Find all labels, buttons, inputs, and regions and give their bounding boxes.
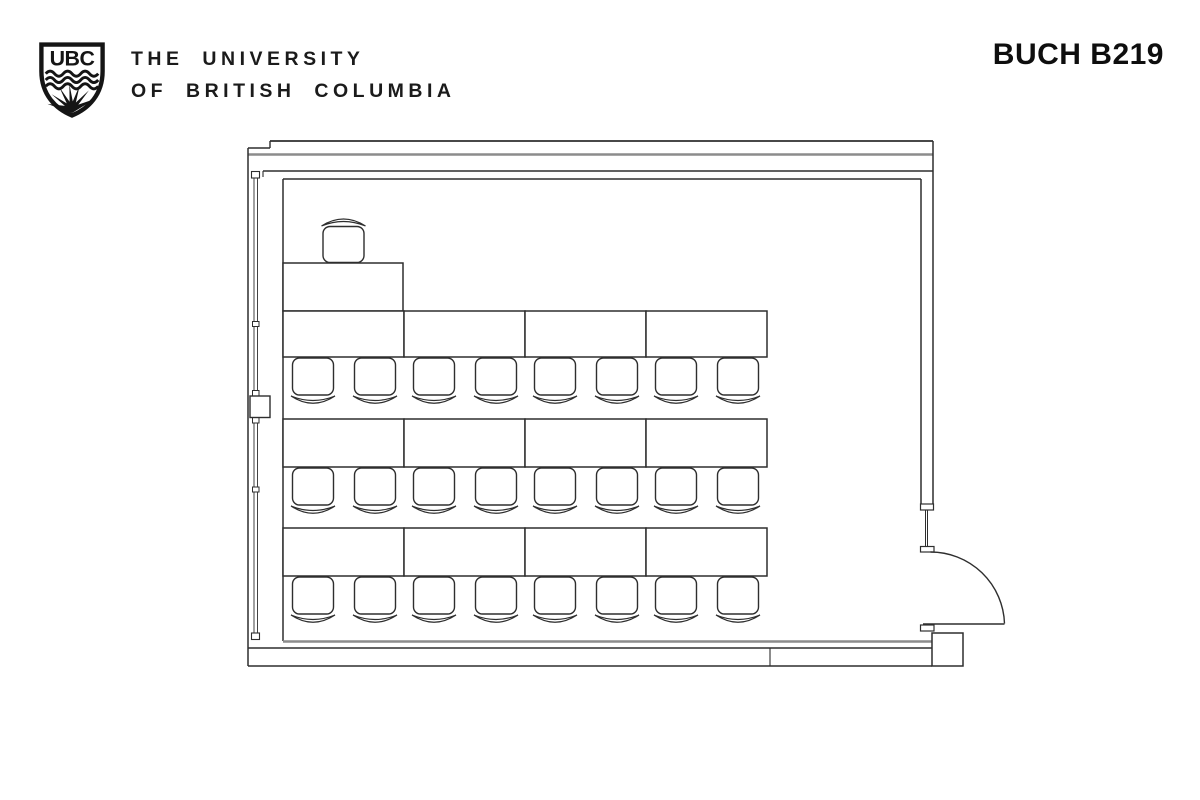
- student-chair: [533, 577, 577, 622]
- student-chair: [595, 358, 639, 403]
- student-chair: [533, 358, 577, 403]
- student-chair: [474, 577, 518, 622]
- student-chair: [353, 468, 397, 513]
- classroom-furniture: [283, 219, 767, 622]
- student-chair: [716, 358, 760, 403]
- student-table: [283, 419, 404, 467]
- student-table: [525, 311, 646, 357]
- student-chair: [412, 468, 456, 513]
- student-chair: [654, 358, 698, 403]
- door: [921, 504, 1005, 666]
- student-chair: [412, 577, 456, 622]
- student-table: [646, 311, 767, 357]
- student-chair: [595, 468, 639, 513]
- student-chair: [474, 358, 518, 403]
- student-chair: [291, 577, 335, 622]
- student-chair: [474, 468, 518, 513]
- student-table: [404, 419, 525, 467]
- student-table: [283, 311, 404, 357]
- student-chair: [291, 358, 335, 403]
- student-table: [525, 528, 646, 576]
- student-table: [404, 311, 525, 357]
- student-table: [283, 528, 404, 576]
- student-table: [404, 528, 525, 576]
- floor-plan: [0, 0, 1200, 800]
- window-wall: [250, 172, 270, 640]
- table-row: [283, 419, 767, 513]
- student-table: [646, 419, 767, 467]
- student-chair: [654, 577, 698, 622]
- student-table: [525, 419, 646, 467]
- floor-plan-page: UBC THE UNIVERSITY OF BRITISH COLUMBIA B…: [0, 0, 1200, 800]
- instructor-chair: [322, 219, 366, 263]
- student-chair: [533, 468, 577, 513]
- student-chair: [291, 468, 335, 513]
- student-chair: [412, 358, 456, 403]
- student-chair: [716, 577, 760, 622]
- table-row: [283, 311, 767, 403]
- student-chair: [716, 468, 760, 513]
- student-chair: [595, 577, 639, 622]
- floor-plan-drawing: [0, 0, 1200, 800]
- student-chair: [353, 577, 397, 622]
- table-row: [283, 528, 767, 622]
- student-table: [646, 528, 767, 576]
- student-chair: [353, 358, 397, 403]
- student-chair: [654, 468, 698, 513]
- instructor-station: [283, 219, 403, 311]
